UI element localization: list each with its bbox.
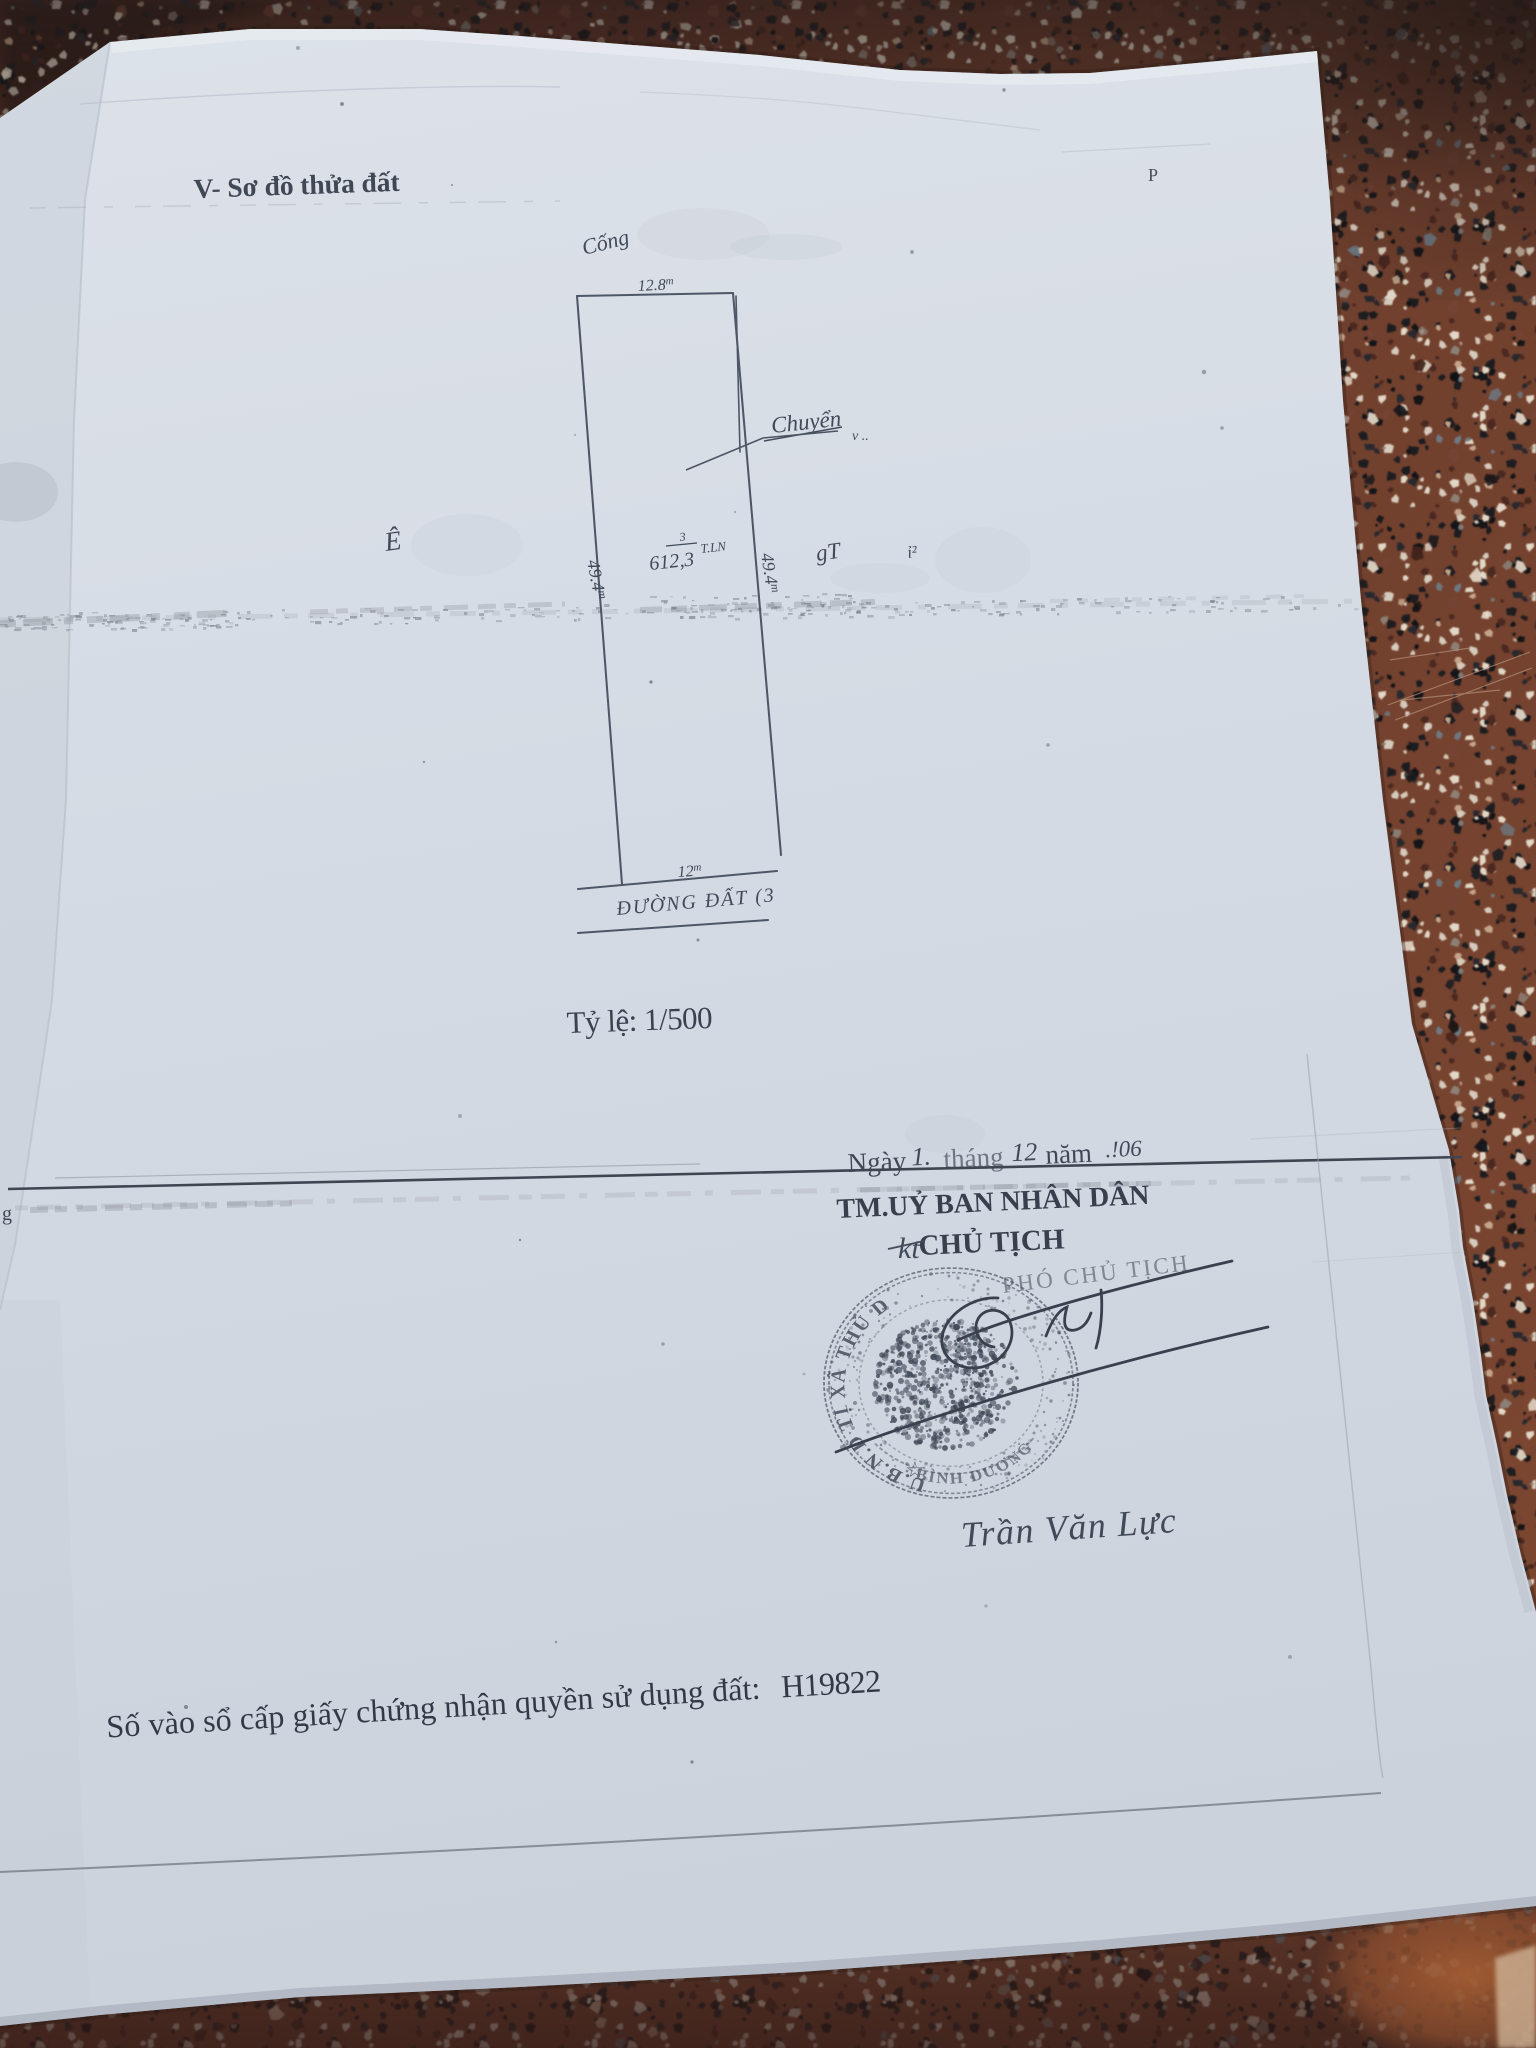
svg-text:☆: ☆ bbox=[905, 1457, 925, 1482]
svg-text:T.LN: T.LN bbox=[700, 538, 728, 556]
svg-text:1.: 1. bbox=[911, 1142, 932, 1172]
svg-text:kt: kt bbox=[898, 1232, 920, 1265]
svg-text:Ngày: Ngày bbox=[847, 1146, 907, 1178]
svg-text:3: 3 bbox=[678, 529, 686, 544]
svg-text:g: g bbox=[2, 1203, 12, 1225]
svg-text:CHỦ TỊCH: CHỦ TỊCH bbox=[918, 1222, 1066, 1262]
svg-text:612,3: 612,3 bbox=[648, 548, 695, 575]
svg-text:v ..: v .. bbox=[852, 429, 869, 444]
svg-text:.!06: .!06 bbox=[1105, 1136, 1143, 1163]
svg-text:12: 12 bbox=[1011, 1137, 1038, 1167]
svg-text:H19822: H19822 bbox=[780, 1663, 882, 1705]
svg-text:P: P bbox=[1148, 165, 1158, 185]
svg-text:Tỷ lệ: 1/500: Tỷ lệ: 1/500 bbox=[566, 1000, 713, 1040]
